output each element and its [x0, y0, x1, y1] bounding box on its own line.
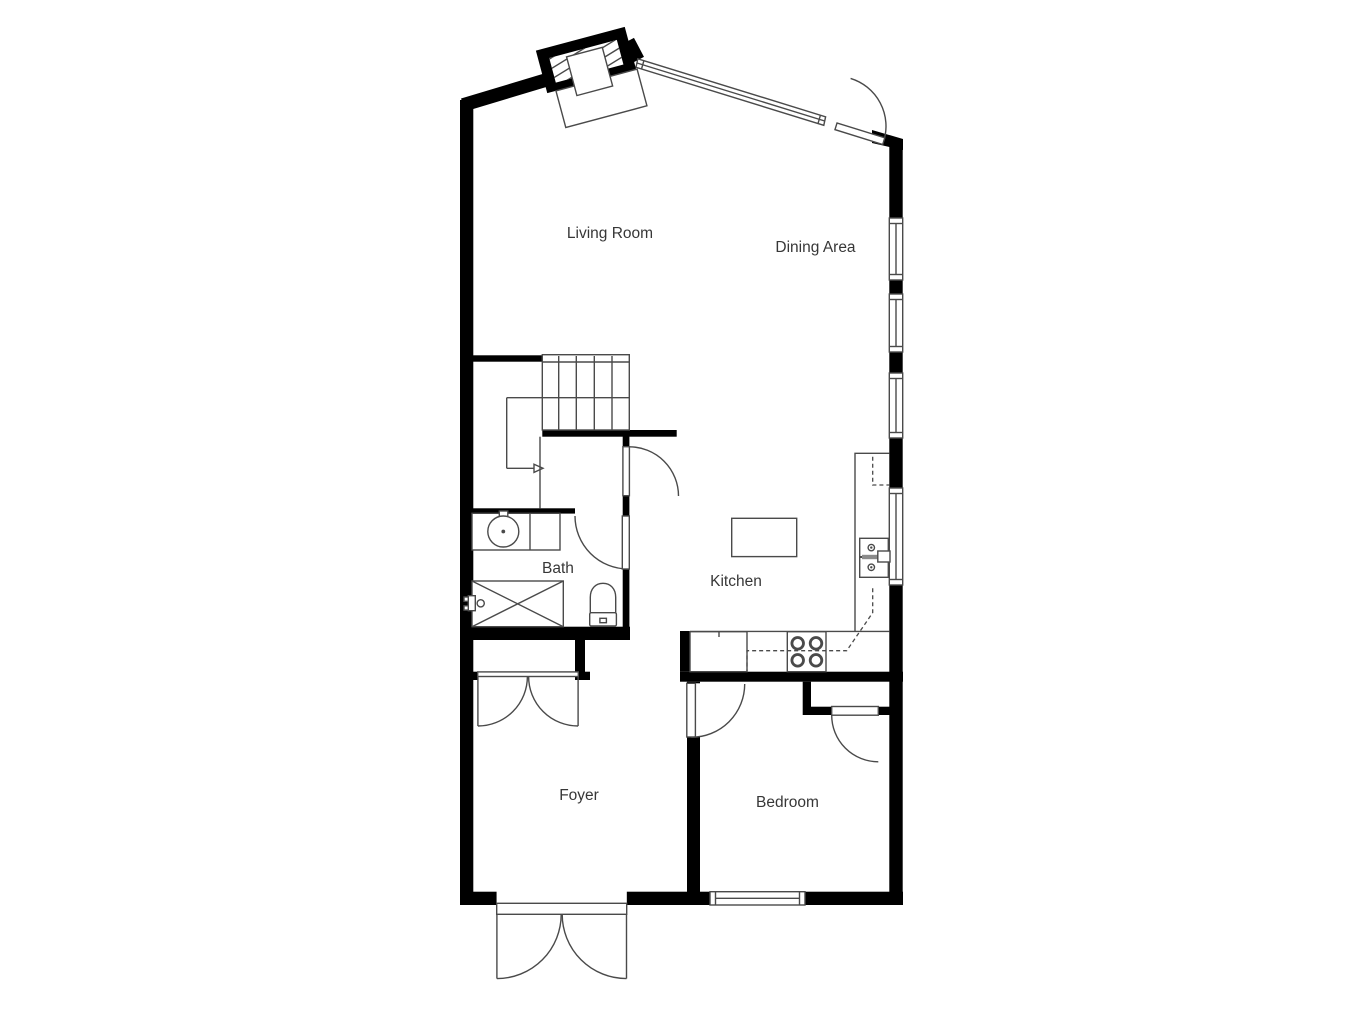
wall-foyer-closet-bottom-l — [460, 672, 478, 680]
vanity-sink — [472, 511, 560, 550]
wall-stairs-top — [460, 355, 542, 361]
window-bedroom — [710, 892, 805, 905]
walls — [460, 41, 903, 905]
bedroom-door — [687, 683, 745, 737]
wall-kitchen-south — [680, 672, 903, 682]
toilet — [590, 583, 617, 626]
bathtub — [464, 581, 563, 627]
fireplace — [533, 15, 647, 130]
floor-plan-svg: Living Room Dining Area Bath Kitchen Foy… — [0, 0, 1365, 1024]
wall-right-seg2 — [889, 280, 902, 294]
kitchen-island — [732, 518, 797, 556]
bedroom-closet-door-leaf — [832, 707, 879, 716]
kitchen-sink — [860, 538, 890, 577]
bedroom-closet-door — [832, 707, 879, 762]
wall-right-seg1 — [889, 146, 902, 218]
entry-threshold — [497, 903, 627, 914]
refrigerator — [690, 632, 747, 672]
wall-bath-bottom — [460, 627, 630, 640]
kitchen-faucet — [878, 551, 890, 562]
bedroom-door-leaf — [687, 683, 696, 737]
window-dining-2 — [889, 294, 902, 352]
label-bedroom: Bedroom — [756, 794, 819, 811]
understair-closet-door — [623, 447, 679, 496]
label-kitchen: Kitchen — [710, 573, 762, 590]
bath-door — [575, 516, 629, 569]
wall-bottom-seg3 — [805, 892, 903, 905]
wall-bedroom-closet-h2 — [878, 707, 890, 715]
wall-bedroom-closet-v — [803, 682, 811, 715]
foyer-closet-threshold — [478, 672, 579, 677]
kitchen-fixtures — [690, 453, 890, 671]
vanity-drain — [501, 530, 505, 534]
wall-kitchen-stub — [680, 631, 690, 672]
window-living-diagonal — [636, 59, 826, 126]
label-dining-area: Dining Area — [775, 239, 856, 256]
wall-bedroom-closet-h1 — [811, 707, 832, 715]
stove — [787, 632, 826, 672]
wall-right-seg3 — [889, 352, 902, 373]
stairs-direction-arrow — [534, 464, 543, 472]
wall-bottom-seg1 — [460, 892, 497, 905]
toilet-button — [600, 618, 607, 622]
wall-right-seg4 — [889, 438, 902, 488]
wall-foyer-closet-bottom-r — [578, 672, 590, 680]
bath-door-leaf — [622, 516, 629, 569]
toilet-bowl — [590, 583, 615, 612]
wall-right-seg5 — [889, 585, 902, 905]
label-foyer: Foyer — [559, 787, 599, 804]
wall-stairs-closet — [542, 430, 676, 437]
foyer-closet-double-door — [478, 672, 579, 726]
floor-plan-page: Living Room Dining Area Bath Kitchen Foy… — [0, 0, 1365, 1024]
stairs-outline — [542, 355, 629, 430]
label-bath: Bath — [542, 560, 574, 577]
bath-fixtures — [464, 511, 616, 627]
window-dining-3 — [889, 373, 902, 438]
wall-left — [460, 100, 473, 905]
understair-door-leaf — [623, 447, 630, 496]
window-dining-1 — [889, 218, 902, 280]
entry-double-door — [497, 890, 627, 978]
window-kitchen — [889, 488, 902, 585]
label-living-room: Living Room — [567, 225, 653, 242]
